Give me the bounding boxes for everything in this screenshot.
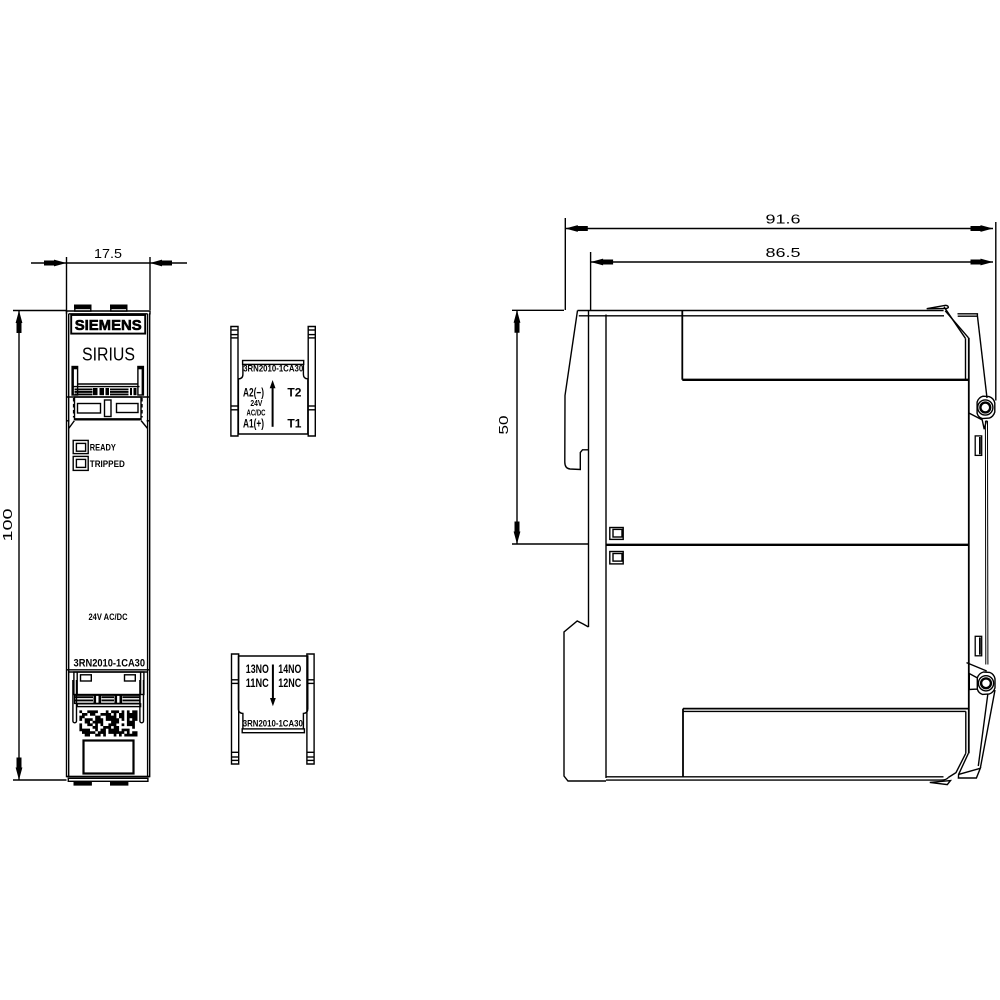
svg-text:12NC: 12NC: [278, 676, 301, 690]
svg-text:24V: 24V: [250, 398, 262, 408]
svg-text:17.5: 17.5: [94, 246, 122, 261]
svg-text:13NO: 13NO: [246, 662, 269, 676]
svg-text:A1(+): A1(+): [243, 417, 264, 431]
svg-text:3RN2010-1CA30: 3RN2010-1CA30: [74, 658, 146, 670]
svg-text:86.5: 86.5: [766, 245, 801, 260]
svg-text:11NC: 11NC: [246, 676, 269, 690]
svg-text:READY: READY: [90, 443, 117, 454]
svg-text:24V AC/DC: 24V AC/DC: [89, 612, 128, 622]
svg-text:91.6: 91.6: [766, 212, 801, 227]
svg-text:14NO: 14NO: [278, 662, 301, 676]
svg-text:T2: T2: [287, 386, 301, 400]
svg-text:SIRIUS: SIRIUS: [82, 345, 135, 365]
svg-text:3RN2010-1CA30: 3RN2010-1CA30: [243, 719, 303, 729]
svg-text:SIEMENS: SIEMENS: [75, 317, 142, 334]
svg-text:TRIPPED: TRIPPED: [90, 459, 125, 470]
svg-text:T1: T1: [287, 417, 301, 431]
svg-text:100: 100: [0, 509, 15, 542]
svg-text:50: 50: [496, 416, 511, 435]
svg-text:3RN2010-1CA30: 3RN2010-1CA30: [243, 364, 303, 374]
